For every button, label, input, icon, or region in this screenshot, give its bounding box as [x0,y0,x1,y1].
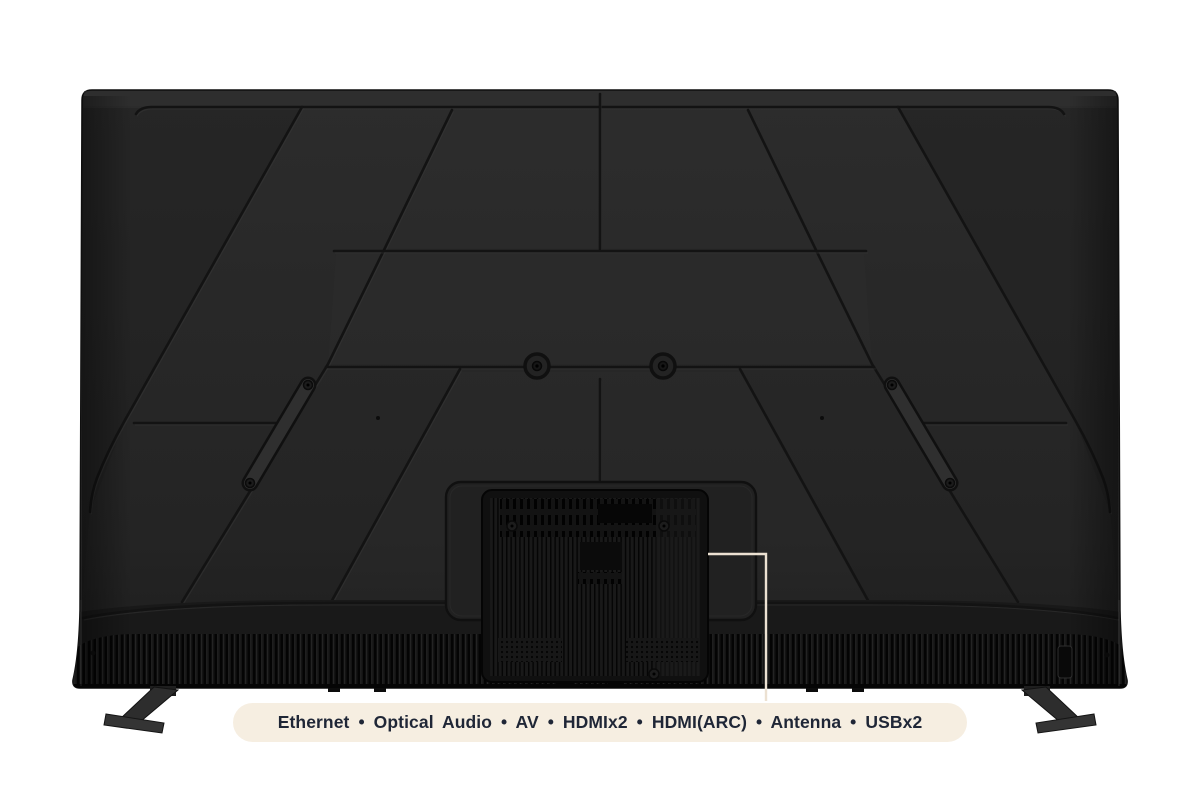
pinhole [1105,653,1110,658]
ports-compartment [482,490,708,688]
scene: Ethernet • Optical Audio • AV • HDMIx2 •… [0,0,1200,800]
tv-rear-illustration [0,0,1200,800]
vesa-screw-right [651,354,675,378]
left-edge-shade [82,96,132,686]
ports-label-pill: Ethernet • Optical Audio • AV • HDMIx2 •… [233,703,967,742]
pinhole [91,651,96,656]
tv-back-panel [72,90,1128,692]
ports-label-text: Ethernet • Optical Audio • AV • HDMIx2 •… [278,712,923,733]
surface-hole [820,416,824,420]
right-edge-shade [1068,96,1118,686]
side-port-slot [1058,646,1072,678]
stand-foot-right [1022,686,1096,733]
vesa-screw-left [525,354,549,378]
compartment-screw [507,521,517,531]
compartment-screw [659,521,669,531]
stand-foot-left [104,686,178,733]
compartment-screw [649,669,659,679]
surface-hole [376,416,380,420]
